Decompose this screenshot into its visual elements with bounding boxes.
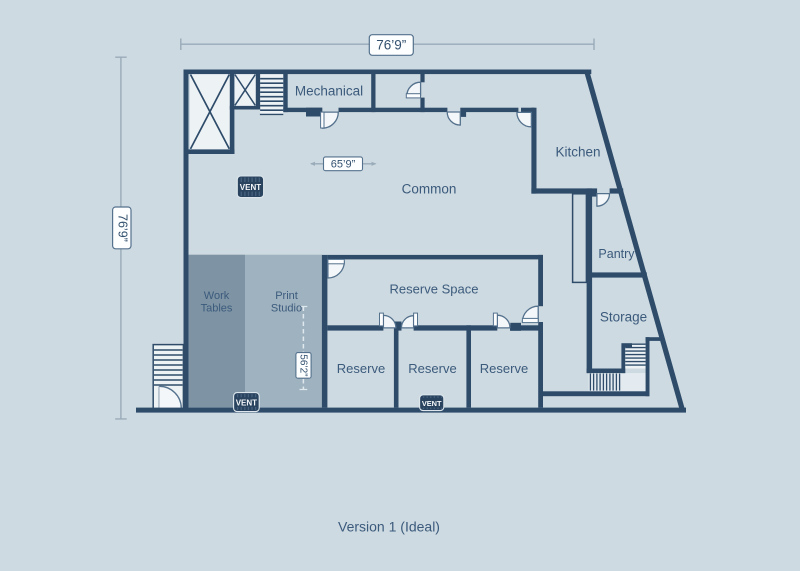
svg-text:76’9”: 76’9” (116, 214, 130, 242)
svg-text:Reserve Space: Reserve Space (390, 282, 479, 297)
svg-text:Kitchen: Kitchen (555, 145, 600, 160)
svg-text:Pantry: Pantry (598, 247, 635, 261)
svg-text:Storage: Storage (600, 310, 647, 325)
svg-text:65’9”: 65’9” (331, 159, 356, 171)
svg-text:Print: Print (275, 290, 298, 302)
svg-text:Reserve: Reserve (337, 361, 385, 376)
svg-text:VENT: VENT (422, 399, 442, 408)
svg-text:76’9”: 76’9” (376, 38, 406, 53)
svg-text:Work: Work (204, 290, 230, 302)
svg-text:Tables: Tables (201, 303, 233, 315)
svg-text:Studio: Studio (271, 303, 302, 315)
svg-text:Reserve: Reserve (408, 361, 456, 376)
svg-text:Version 1 (Ideal): Version 1 (Ideal) (338, 519, 440, 535)
svg-text:Mechanical: Mechanical (295, 84, 363, 99)
svg-text:Common: Common (402, 182, 457, 197)
svg-text:56’2”: 56’2” (297, 354, 308, 376)
svg-text:Reserve: Reserve (480, 361, 528, 376)
svg-text:VENT: VENT (236, 398, 257, 407)
svg-text:VENT: VENT (240, 183, 261, 192)
